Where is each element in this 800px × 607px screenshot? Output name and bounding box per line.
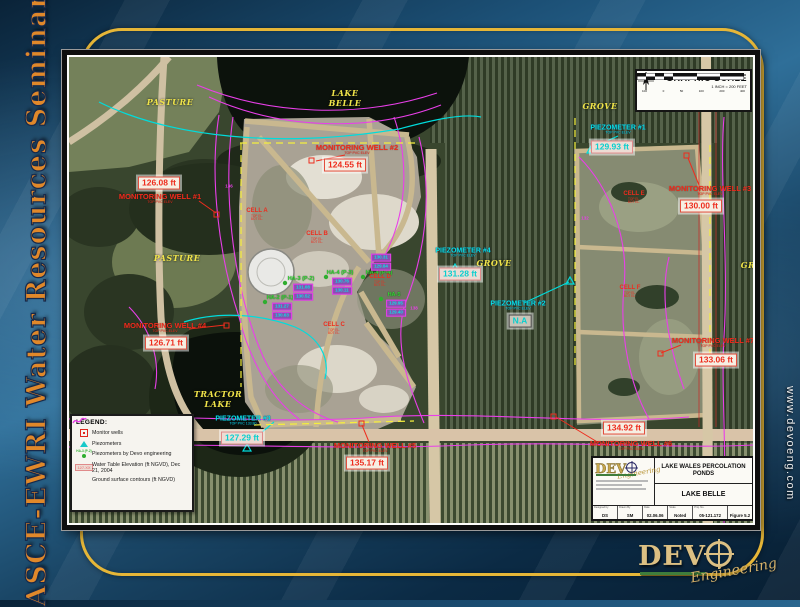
well-value: 130.00 ft	[680, 200, 722, 213]
area-label-grove: GROVE	[582, 102, 617, 110]
legend-title: LEGEND:	[76, 419, 188, 426]
boring-values: 131.27130.63	[272, 303, 292, 320]
well-label: MONITORING WELL #4TOP PVC ELEV	[124, 322, 206, 334]
well-label: MONITORING WELL #3TOP PVC ELEV	[669, 185, 751, 197]
well-label: MONITORING WELL #1TOP PVC ELEV	[119, 193, 201, 205]
seminar-banner: ASCE-EWRI Water Resources Seminar	[22, 0, 53, 607]
well-label: MONITORING WELL #7TOP PVC ELEV	[672, 337, 753, 349]
well-value: 135.17 ft	[346, 457, 388, 470]
well-value: 134.92 ft	[603, 422, 645, 435]
scrub-patch	[252, 165, 312, 249]
legend-item-contours: Ground surface contours (ft NGVD)	[76, 477, 188, 483]
monitor-well-icon	[80, 429, 88, 437]
legend: LEGEND: Monitor wells Piezometers HA-3 (…	[70, 414, 194, 512]
well-label: MONITORING WELL #2TOP PVC ELEV	[316, 144, 398, 156]
scale-bar	[637, 73, 744, 80]
website-banner: www.devoeng.com	[784, 386, 796, 501]
area-label-lake: LAKE	[332, 89, 359, 97]
piezometer-value: 131.28 ft	[439, 268, 481, 281]
legend-item-monitor-wells: Monitor wells	[76, 429, 188, 437]
cell-label: CELL BTOP EL.BOT EL.	[306, 231, 328, 245]
boring-label: HA-4 (P-4)	[366, 271, 393, 277]
boring-label: HA-4 (P-3)	[327, 271, 354, 277]
area-label-tractor-lake: LAKE	[205, 400, 232, 408]
boring-values: 131.08130.52	[293, 284, 313, 301]
piezometer-value: 129.93 ft	[591, 141, 633, 154]
area-label-gr: GR	[741, 261, 753, 269]
slide: { "slide": { "left_banner": "ASCE-EWRI W…	[0, 0, 800, 600]
titleblock-fields: Designed byDS Drawn BySM Date02.06.06 Sc…	[593, 505, 752, 519]
project-name: LAKE WALES PERCOLATION PONDS	[655, 458, 752, 484]
scale-ticks: 100 0 50 100 200 400	[640, 89, 747, 93]
well-value: 126.71 ft	[145, 337, 187, 350]
boring-values: 129.95129.40	[386, 300, 406, 317]
cell-label: CELL ATOP EL.BOT EL.	[246, 208, 267, 222]
well-value: 133.06 ft	[695, 354, 737, 367]
piezometer-label: PIEZOMETER #4TOP PVC ELEV	[435, 247, 490, 258]
area-label-tractor: TRACTOR	[194, 390, 242, 398]
title-block: DEV Engineering LAKE WALES PERCOLATION P…	[591, 456, 753, 521]
boring-values: 130.31129.84	[371, 254, 391, 271]
area-label-pasture-2: PASTURE	[154, 254, 201, 262]
area-label-belle: BELLE	[329, 99, 362, 107]
contour-icon	[72, 416, 87, 425]
piezometer-label: PIEZOMETER #3TOP PVC 133.80	[215, 415, 270, 426]
cell-label: CELL ETOP EL.BOT EL.	[623, 191, 644, 205]
well-label: MONITORING WELL #6TOP PVC ELEV	[590, 440, 672, 452]
boring-label: HA-5	[388, 293, 401, 299]
piezometer-label: PIEZOMETER #2TOP PVC ELEV	[490, 300, 545, 311]
boring-icon	[82, 454, 86, 458]
legend-item-piezometers: Piezometers	[76, 441, 188, 447]
piezometer-value: 127.29 ft	[221, 432, 263, 445]
well-label: MONITORING WELL #5TOP PVC ELEV	[334, 442, 416, 454]
sand-patch	[359, 385, 409, 413]
well-value: 124.55 ft	[324, 159, 366, 172]
boring-label: HA-2 (P-1)	[267, 296, 294, 302]
scrub-patch	[639, 319, 699, 395]
map-panel: PASTURE LAKE BELLE GROVE GROVE PASTURE T…	[62, 50, 760, 530]
cell-label: CELL FTOP EL.BOT EL.	[620, 285, 641, 299]
aerial-map: PASTURE LAKE BELLE GROVE GROVE PASTURE T…	[69, 57, 753, 523]
storage-tank	[248, 249, 294, 295]
devo-logo: DEV Engineering	[638, 541, 778, 591]
boring-label: HA-3 (P-2)	[288, 277, 315, 283]
area-label-grove-2: GROVE	[476, 259, 511, 267]
water-table-icon: 127.XX	[75, 464, 92, 471]
contour-label: 138	[410, 307, 418, 312]
piezometer-icon	[80, 441, 88, 447]
piezometer-value: N.A	[509, 315, 532, 328]
legend-item-devo-piezometers: HA-3 (P-2) Piezometers by Devo engineeri…	[76, 450, 188, 458]
drawing-title: LAKE BELLE	[655, 484, 752, 505]
tree-clump	[635, 285, 679, 309]
legend-item-water-table: 127.XX Water Table Elevation (ft NGVD), …	[76, 462, 188, 474]
contour-label: 132	[581, 217, 589, 222]
well-value: 126.08 ft	[138, 177, 180, 190]
graphic-scale-box: NORTH GRAPHIC SCALE 1 INCH = 200 FEET 10…	[635, 69, 752, 112]
piezometer-label: PIEZOMETER #1TOP PVC ELEV	[590, 124, 645, 135]
contour-label: 136	[225, 185, 233, 190]
area-label-pasture: PASTURE	[147, 98, 194, 106]
boring-values: 130.76130.11	[332, 278, 352, 295]
boring-icon-label: HA-3 (P-2)	[76, 450, 91, 453]
devo-word: DEV	[638, 541, 706, 572]
cell-label: CELL CTOP EL.BOT EL.	[323, 322, 345, 336]
titleblock-logo: DEV Engineering	[593, 458, 655, 505]
